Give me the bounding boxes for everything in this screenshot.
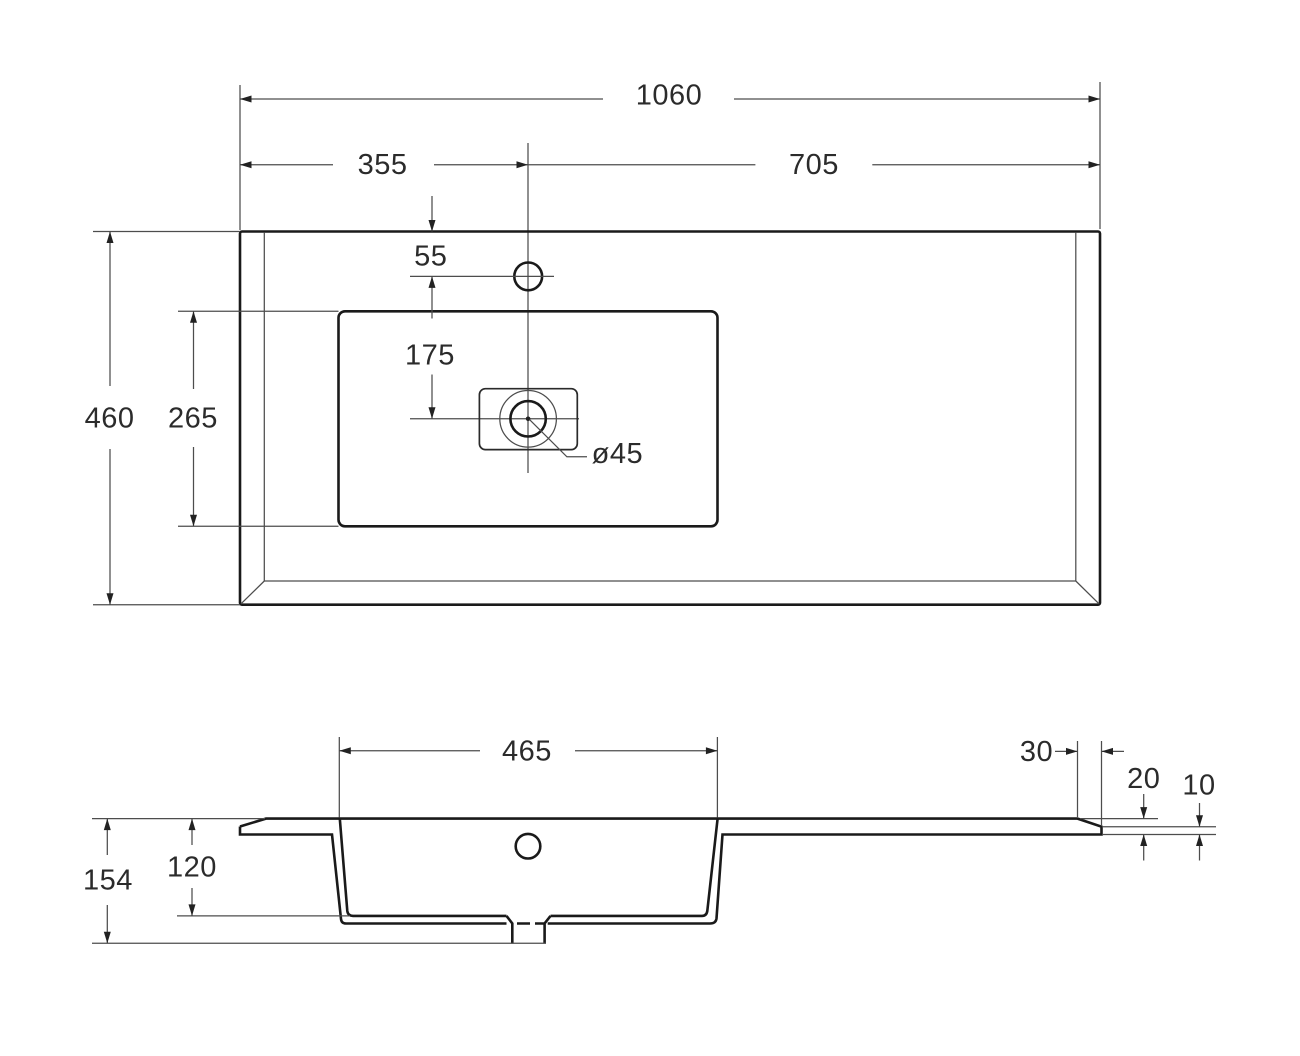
svg-text:465: 465 [502,736,552,768]
svg-text:20: 20 [1127,763,1160,795]
svg-text:355: 355 [358,149,408,181]
svg-text:1060: 1060 [636,80,703,112]
svg-text:460: 460 [85,403,135,435]
svg-text:175: 175 [405,340,455,372]
svg-text:ø45: ø45 [592,438,643,470]
svg-text:120: 120 [167,852,217,884]
svg-text:10: 10 [1182,770,1215,802]
svg-text:30: 30 [1020,736,1053,768]
svg-text:265: 265 [168,403,218,435]
svg-text:154: 154 [83,864,133,896]
svg-text:55: 55 [414,240,447,272]
svg-text:705: 705 [789,149,839,181]
